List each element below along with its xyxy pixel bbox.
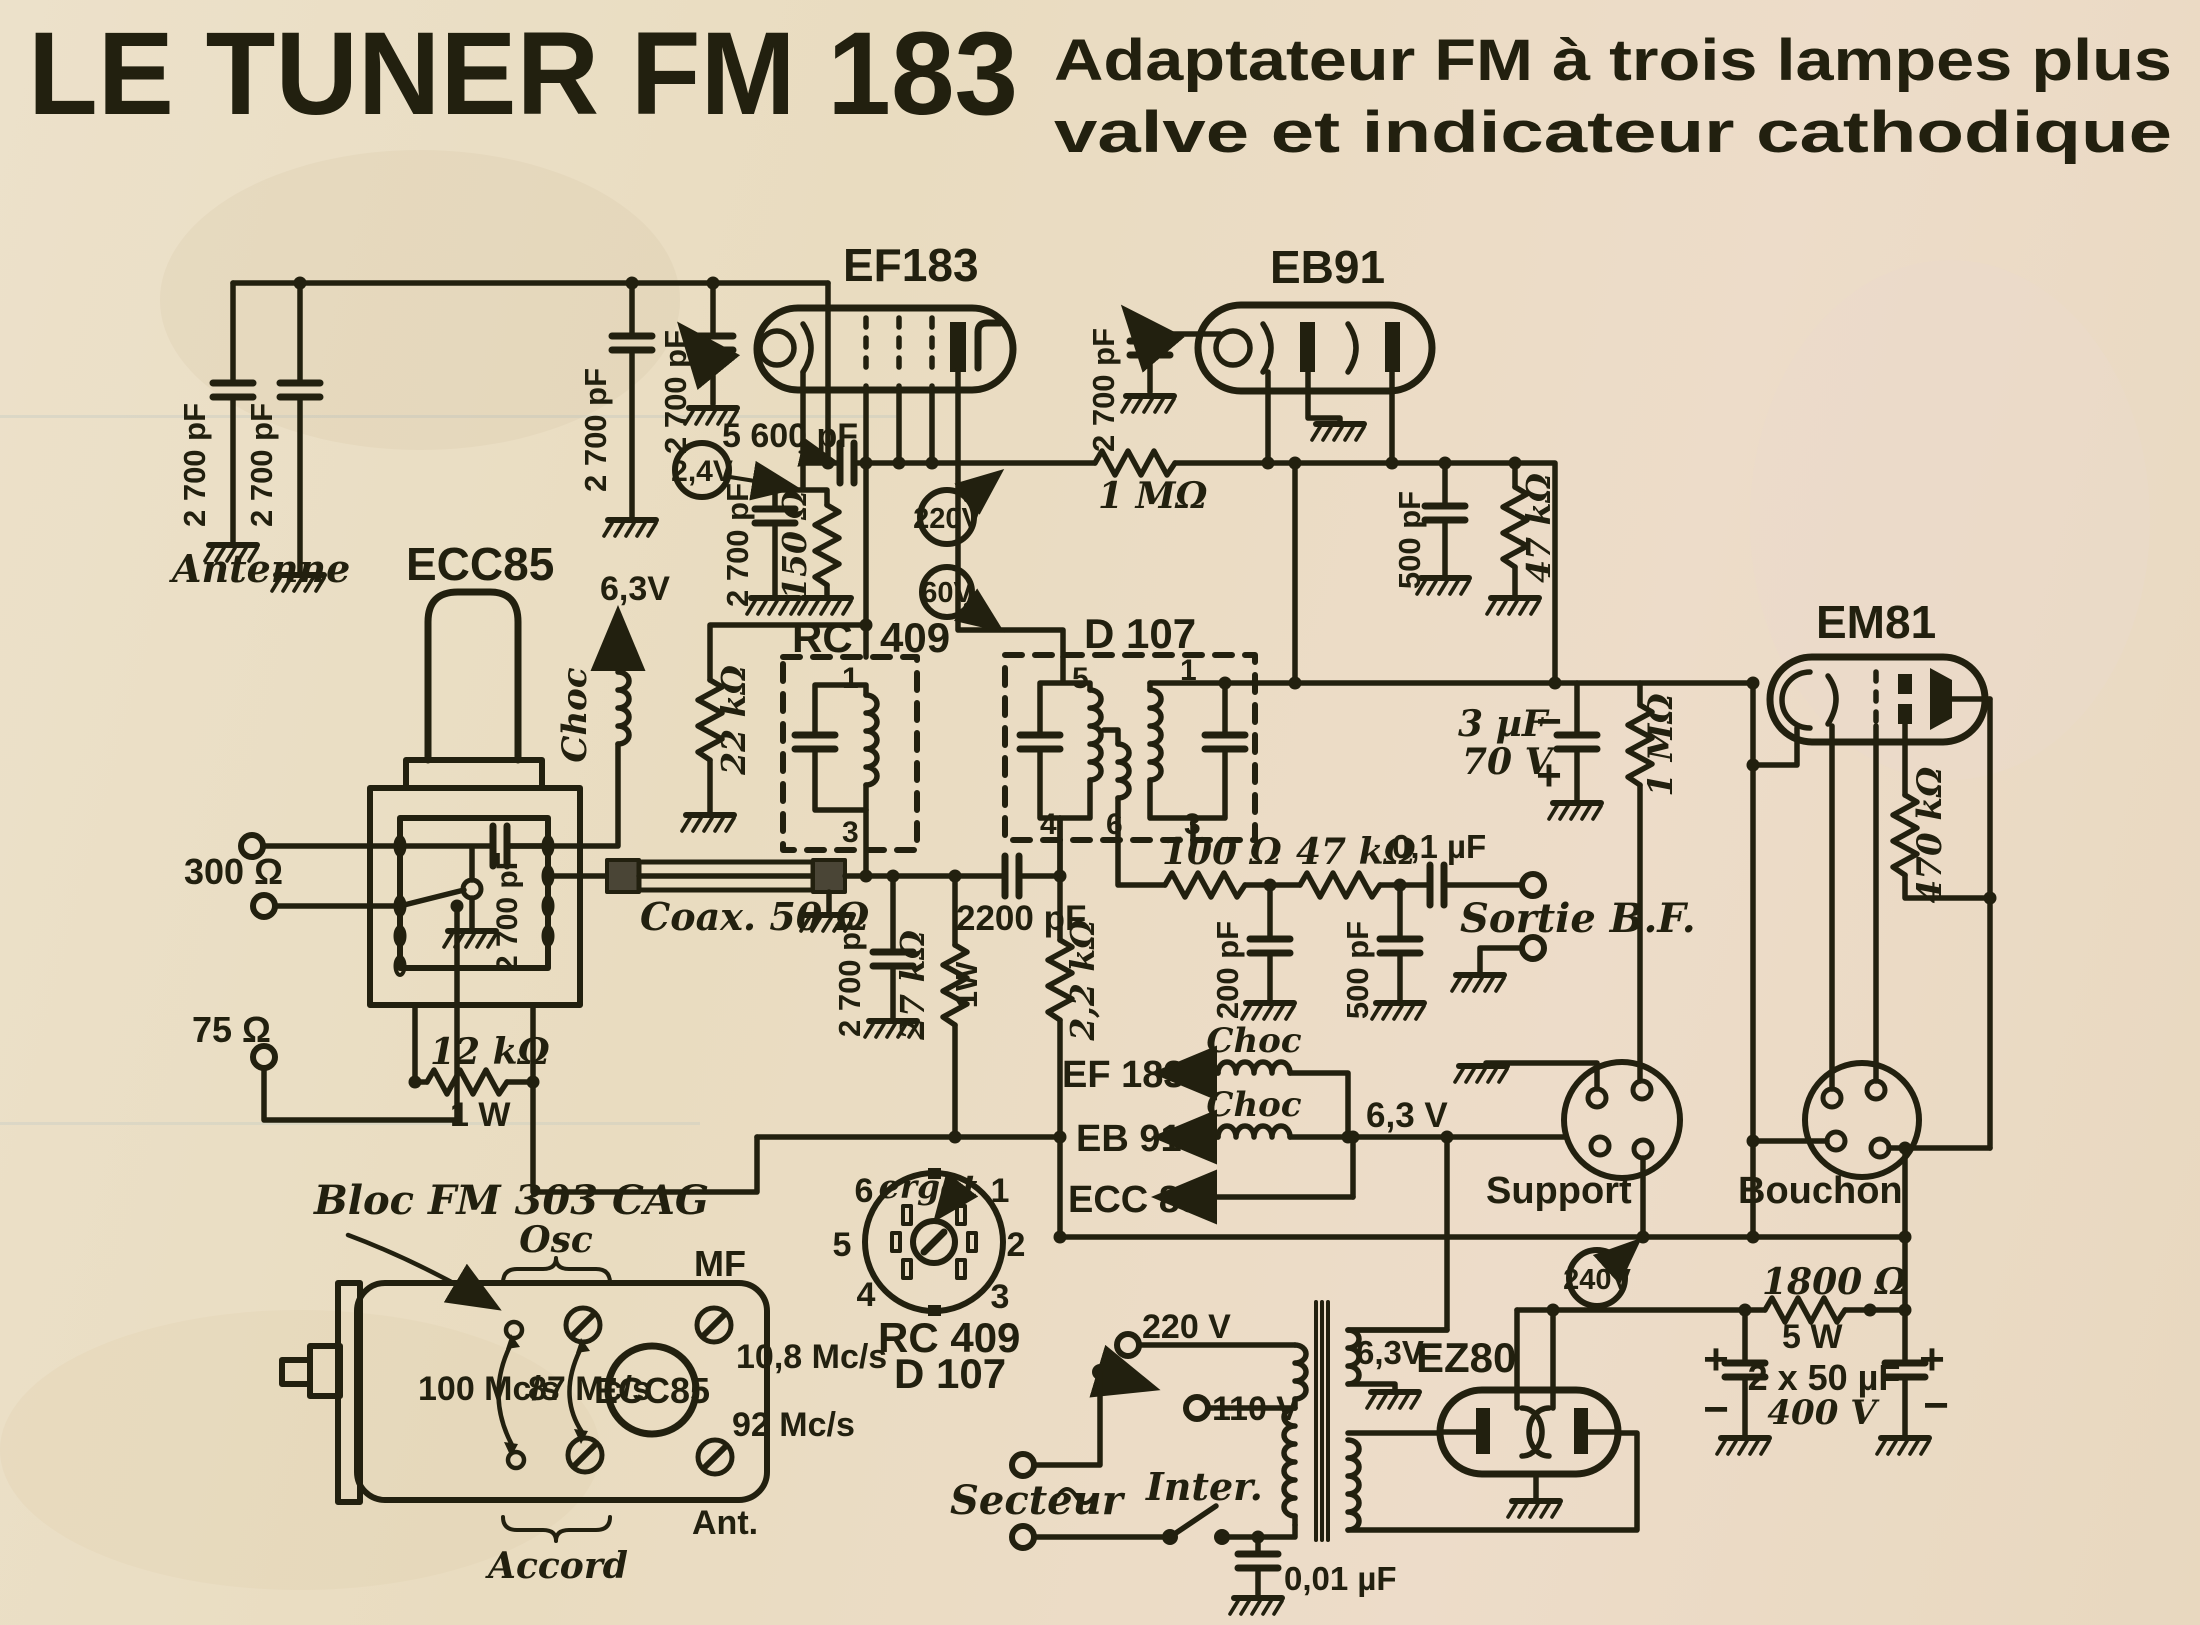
- label-c2x50: 2 x 50 µF: [1748, 1357, 1901, 1398]
- label-c500-b: 500 pF: [1340, 921, 1375, 1019]
- label-c2700-cath: 2 700 pF: [720, 483, 755, 607]
- label-tube-ez80: EZ80: [1416, 1334, 1516, 1381]
- label-c200: 200 pF: [1210, 921, 1245, 1019]
- label-support: Support: [1486, 1170, 1632, 1212]
- header: LE TUNER FM 183 Adaptateur FM à trois la…: [28, 8, 2172, 165]
- label-choc1: Choc: [1206, 1021, 1301, 1061]
- label-c2700-b: 2 700 pF: [244, 403, 279, 527]
- label-c2700-bloc: 2 700 pF: [491, 852, 524, 972]
- label-c2700-d: 2 700 pF: [658, 330, 693, 454]
- ef183-cathode-network: 5 600 pF 2 700 pF 150 Ω 2,4V 220V 60V: [671, 417, 1095, 628]
- label-f92: 92 Mc/s: [732, 1406, 855, 1444]
- label-r300: 300 Ω: [184, 851, 283, 892]
- label-choc2: Choc: [1206, 1085, 1301, 1125]
- label-bouchon: Bouchon: [1738, 1170, 1903, 1212]
- label-c2700-a: 2 700 pF: [177, 403, 212, 527]
- tap-220v-terminal: [1117, 1334, 1139, 1356]
- label-r150: 150 Ω: [775, 490, 814, 600]
- label-v220: 220V: [913, 503, 981, 535]
- socket-pin3: 3: [991, 1278, 1010, 1316]
- inter-switch: [1170, 1506, 1216, 1537]
- antenna-inputs: Antenne 300 Ω 75 Ω: [169, 546, 464, 1120]
- label-v63-tr: 6,3V: [1356, 1334, 1424, 1371]
- label-tube-em81: EM81: [1816, 596, 1936, 648]
- label-c001: 0,01 µF: [1284, 1560, 1397, 1597]
- label-accord: Accord: [485, 1545, 628, 1587]
- label-r470k: 470 kΩ: [1910, 767, 1950, 904]
- label-v63-bus: 6,3 V: [1366, 1096, 1448, 1135]
- subtitle-line1: Adaptateur FM à trois lampes plus: [1054, 28, 2172, 93]
- secteur-terminal-b: [1012, 1526, 1034, 1548]
- schematic-canvas: LE TUNER FM 183 Adaptateur FM à trois la…: [0, 0, 2200, 1625]
- socket-pin5: 5: [833, 1226, 852, 1264]
- label-r12k: 12 kΩ: [430, 1031, 550, 1073]
- socket-pin1: 1: [991, 1172, 1010, 1210]
- label-tube-ef183: EF183: [843, 239, 979, 291]
- label-c2700-coax: 2 700 pF: [832, 913, 867, 1037]
- label-rc: RC: [792, 614, 853, 661]
- subtitle-line2: valve et indicateur cathodique: [1054, 100, 2172, 165]
- label-secteur: Secteur: [950, 1477, 1126, 1524]
- support-socket: Support: [1455, 1062, 1680, 1237]
- label-d107: D 107: [1084, 610, 1196, 657]
- label-tube-ecc85: ECC85: [406, 538, 554, 590]
- label-r1800-w: 5 W: [1782, 1318, 1843, 1356]
- sign-plus-cap1: +: [1703, 1335, 1729, 1384]
- sign-plus-3uf: +: [1536, 751, 1562, 800]
- label-r22k: 22 kΩ: [714, 665, 753, 776]
- label-socket-d107: D 107: [894, 1350, 1006, 1397]
- transformer-core: [1316, 1302, 1328, 1540]
- label-r1m-a: 1 MΩ: [1098, 475, 1207, 517]
- label-c2700-c: 2 700 pF: [578, 368, 613, 492]
- label-c01: 0,1 µF: [1392, 828, 1486, 865]
- sign-minus-cap2: −: [1923, 1381, 1949, 1430]
- label-v24: 2,4V: [671, 455, 733, 488]
- label-ergot: ergot: [879, 1167, 978, 1206]
- voltage-selector-switch: [1100, 1372, 1150, 1387]
- label-rc-pin1: 1: [842, 662, 859, 695]
- label-f87: 87 Mc/s: [528, 1370, 651, 1408]
- socket-pin2: 2: [1007, 1226, 1026, 1264]
- label-c500-a: 500 pF: [1392, 491, 1427, 589]
- label-sortie: Sortie B.F.: [1460, 895, 1696, 942]
- ez80-tube: EZ80: [1416, 1310, 1618, 1517]
- label-heat-ecc85: ECC 85: [1068, 1179, 1201, 1221]
- socket-pin6: 6: [855, 1172, 874, 1210]
- heater-choke-left: 6,3V Choc: [507, 570, 670, 846]
- power-supply: 220 V 110 V Secteur Inter. 0,01 µF: [950, 1302, 1637, 1614]
- label-r47k-a: 47 kΩ: [1519, 473, 1558, 583]
- tap-110v-terminal: [1186, 1397, 1208, 1419]
- sign-minus-3uf: −: [1536, 697, 1562, 746]
- label-bloc-fm: Bloc FM 303 CAG: [313, 1177, 709, 1224]
- coax-cable: Coax. 50 Ω 2 700 pF 2200 pF: [548, 856, 1086, 1037]
- label-d107-p5: 5: [1072, 662, 1089, 695]
- label-v220-tap: 220 V: [1142, 1308, 1231, 1346]
- sortie-bf-terminal-hot: [1522, 874, 1544, 896]
- scanned-schematic-page: LE TUNER FM 183 Adaptateur FM à trois la…: [0, 0, 2200, 1625]
- label-c2700-eb91: 2 700 pF: [1086, 328, 1121, 452]
- label-r75: 75 Ω: [192, 1009, 271, 1050]
- sign-minus-cap1: −: [1703, 1385, 1729, 1434]
- secteur-terminal-a: [1012, 1454, 1034, 1476]
- label-r100: 100 Ω: [1162, 831, 1282, 873]
- label-r1800: 1800 Ω: [1762, 1261, 1907, 1303]
- page-title: LE TUNER FM 183: [28, 8, 1018, 140]
- label-c5600: 5 600 pF: [722, 417, 858, 455]
- label-inter: Inter.: [1145, 1464, 1263, 1509]
- label-tube-eb91: EB91: [1270, 241, 1385, 293]
- label-v400: 400 V: [1767, 1393, 1880, 1433]
- label-mf: MF: [694, 1243, 746, 1284]
- em81-target-node: 3 µF 70 V − + 1 MΩ: [1458, 683, 1681, 1081]
- eb91-tube: EB91 2 700 pF: [1086, 241, 1432, 463]
- label-antenne: Antenne: [169, 546, 350, 591]
- antenna-terminal-300-b: [253, 895, 275, 917]
- label-choc-left: Choc: [555, 667, 595, 762]
- label-osc: Osc: [519, 1219, 593, 1261]
- label-r2k2: 2,2 kΩ: [1063, 919, 1102, 1042]
- label-f108: 10,8 Mc/s: [736, 1338, 887, 1376]
- label-r1m-b: 1 MΩ: [1641, 693, 1681, 796]
- label-r12k-w: 1 W: [450, 1096, 511, 1134]
- label-rc-pin3: 3: [842, 816, 859, 849]
- label-ant: Ant.: [692, 1504, 758, 1542]
- sign-plus-cap2: +: [1919, 1335, 1945, 1384]
- af-output-chain: 100 Ω 47 kΩ 0,1 µF 200 pF 500 pF Sortie …: [1162, 828, 1696, 1019]
- label-r27k: 27 kΩ: [893, 930, 932, 1041]
- osc-brace: [503, 1258, 610, 1283]
- label-v240: 240V: [1563, 1264, 1631, 1296]
- agc-arrow-icon: [1128, 313, 1145, 333]
- label-r27k-w: 1W: [949, 961, 984, 1008]
- socket-pin4: 4: [857, 1276, 876, 1314]
- label-rc-num: 409: [880, 614, 950, 661]
- label-v63-choke: 6,3V: [600, 570, 670, 608]
